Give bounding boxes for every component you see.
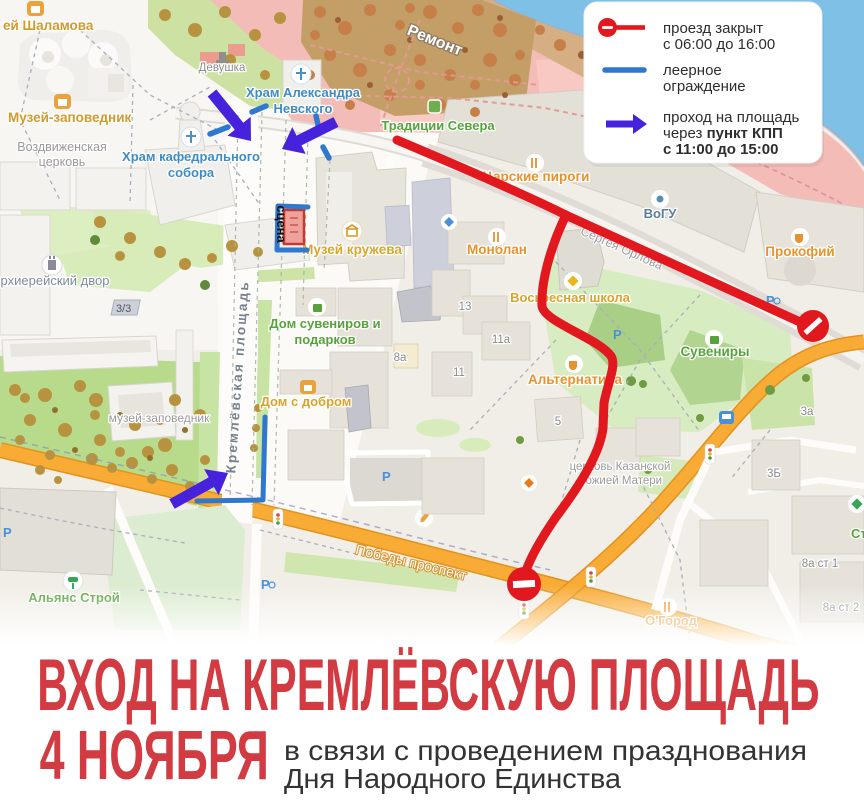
svg-text:Девушка: Девушка: [199, 62, 246, 74]
svg-text:13: 13: [459, 301, 472, 313]
svg-text:8а: 8а: [394, 352, 407, 364]
svg-text:4 НОЯБРЯ: 4 НОЯБРЯ: [40, 717, 269, 795]
svg-text:в связи с проведением празднов: в связи с проведением празднования: [284, 735, 807, 766]
svg-text:церковь: церковь: [39, 155, 86, 169]
svg-text:проезд закрыт: проезд закрыт: [663, 20, 763, 37]
svg-text:собора: собора: [168, 165, 215, 180]
svg-text:3Б: 3Б: [767, 468, 781, 480]
svg-text:11: 11: [453, 367, 465, 379]
svg-text:леерное: леерное: [663, 62, 722, 79]
svg-text:Невского: Невского: [274, 101, 333, 116]
svg-text:через пункт КПП: через пункт КПП: [663, 125, 783, 142]
svg-text:подарков: подарков: [294, 332, 355, 347]
svg-text:Музей-заповедник: Музей-заповедник: [8, 110, 132, 125]
svg-text:сцена: сцена: [274, 205, 289, 243]
svg-text:ВоГУ: ВоГУ: [644, 206, 678, 221]
svg-text:8а ст 1: 8а ст 1: [802, 558, 839, 570]
svg-text:P: P: [382, 469, 391, 484]
svg-text:ВХОД НА КРЕМЛЁВСКУЮ ПЛОЩАДЬ: ВХОД НА КРЕМЛЁВСКУЮ ПЛОЩАДЬ: [37, 645, 819, 726]
svg-text:Воздвиженская: Воздвиженская: [17, 140, 106, 154]
svg-text:ограждение: ограждение: [663, 78, 746, 95]
svg-text:Дом с добром: Дом с добром: [261, 394, 352, 409]
svg-text:Музей кружева: Музей кружева: [302, 242, 402, 257]
svg-text:Дом сувениров и: Дом сувениров и: [269, 316, 380, 331]
svg-text:Храм Александра: Храм Александра: [246, 85, 361, 100]
svg-text:Ст: Ст: [851, 526, 864, 541]
svg-text:3а: 3а: [801, 406, 814, 418]
svg-text:рхиерейский двор: рхиерейский двор: [1, 273, 110, 288]
svg-text:Прокофий: Прокофий: [765, 244, 834, 259]
svg-text:P: P: [613, 327, 622, 342]
svg-text:Храм кафедрального: Храм кафедрального: [122, 149, 260, 164]
svg-text:Воскресная школа: Воскресная школа: [510, 290, 630, 305]
svg-text:Божией Матери: Божией Матери: [578, 475, 662, 487]
svg-text:P: P: [3, 525, 12, 540]
svg-text:Дня Народного Единства: Дня Народного Единства: [284, 763, 621, 794]
svg-text:ей Шаламова: ей Шаламова: [3, 18, 94, 33]
svg-text:3/3: 3/3: [116, 303, 131, 315]
svg-text:с 11:00 до 15:00: с 11:00 до 15:00: [663, 141, 778, 158]
svg-text:с 06:00 до 16:00: с 06:00 до 16:00: [663, 36, 775, 53]
svg-text:музей-заповедник: музей-заповедник: [109, 411, 210, 425]
svg-text:5: 5: [555, 416, 561, 428]
svg-text:Традиции Севера: Традиции Севера: [381, 118, 495, 133]
svg-text:проход на площадь: проход на площадь: [663, 109, 800, 126]
svg-text:11а: 11а: [492, 334, 511, 346]
